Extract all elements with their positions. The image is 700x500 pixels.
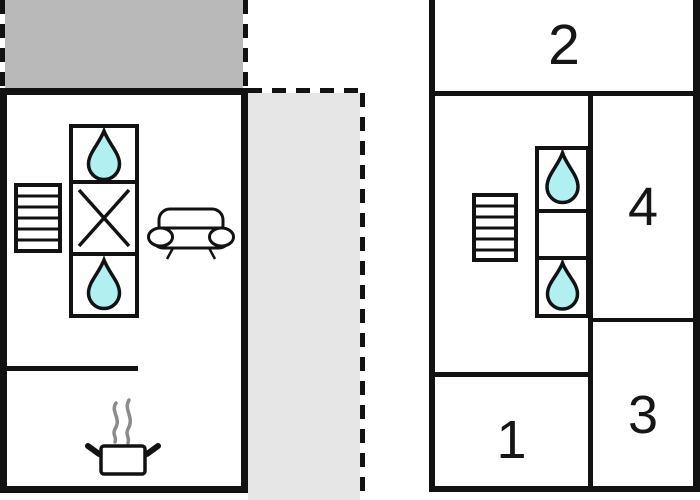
interior-wall [7, 366, 138, 371]
upper-terrace-area [5, 0, 243, 88]
side-terrace-area [248, 93, 360, 500]
right-unit-wall-right [693, 0, 700, 492]
room-1: 1 [435, 377, 588, 486]
room-label: 3 [628, 388, 658, 442]
room-label: 2 [548, 17, 580, 74]
floor-plan-canvas: 2 4 3 1 [0, 0, 700, 500]
room-3: 3 [593, 322, 693, 486]
side-terrace-dashed-border-top [248, 88, 366, 93]
room-label: 1 [496, 413, 526, 467]
room-2: 2 [435, 0, 693, 91]
room-4: 4 [593, 96, 693, 318]
room-label: 4 [628, 180, 658, 234]
right-unit-wall-bottom [429, 486, 700, 492]
bathroom-fixture-column [69, 124, 139, 318]
stairs-icon [472, 193, 518, 262]
sofa-icon [146, 206, 236, 262]
cooking-pot-icon [84, 396, 162, 476]
bathroom-fixture-column [535, 146, 590, 318]
steam-icon [114, 400, 130, 443]
side-terrace-dashed-border-right [360, 93, 365, 500]
terrace-dashed-border-right [243, 0, 248, 88]
stairs-icon [14, 183, 62, 253]
terrace-dashed-border-left [0, 0, 5, 88]
